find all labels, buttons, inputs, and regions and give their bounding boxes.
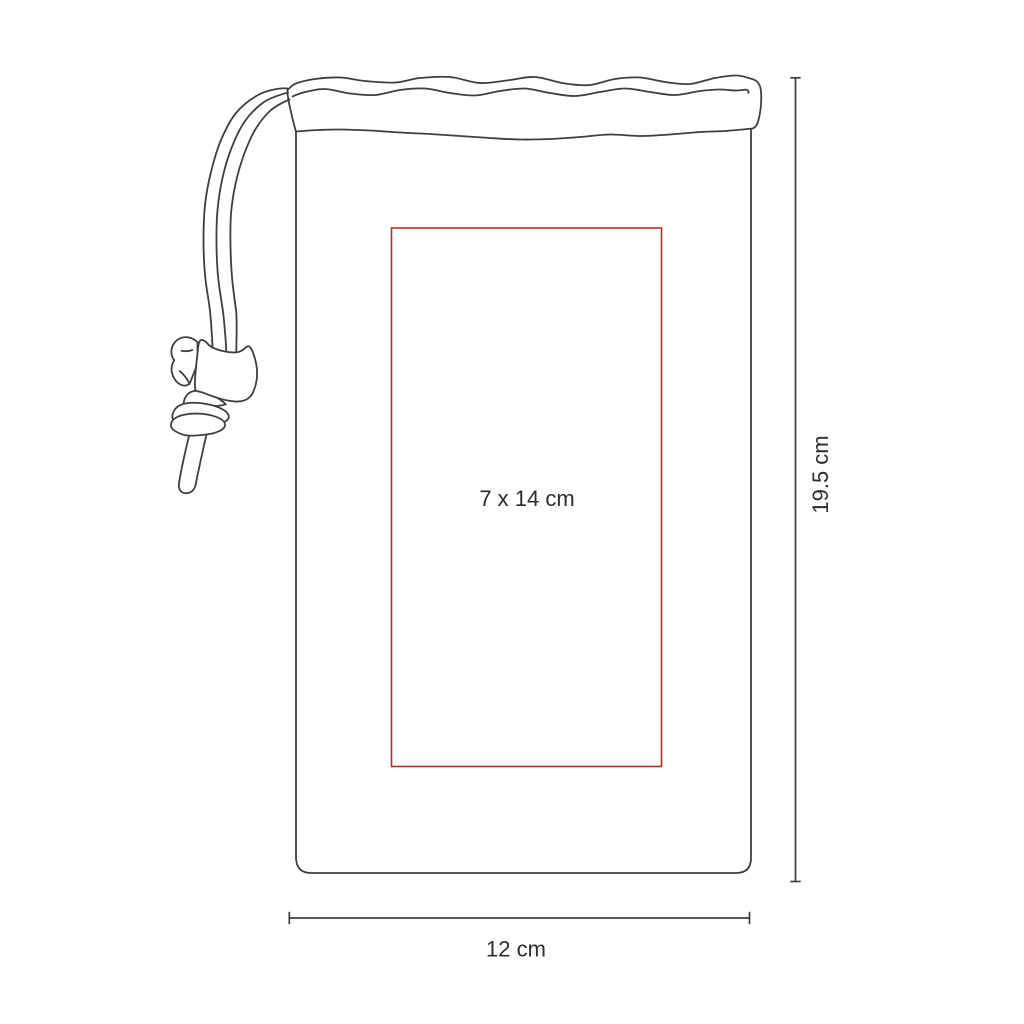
- svg-text:12 cm: 12 cm: [486, 937, 546, 962]
- svg-text:7 x 14 cm: 7 x 14 cm: [479, 486, 574, 511]
- svg-text:19.5 cm: 19.5 cm: [808, 435, 833, 513]
